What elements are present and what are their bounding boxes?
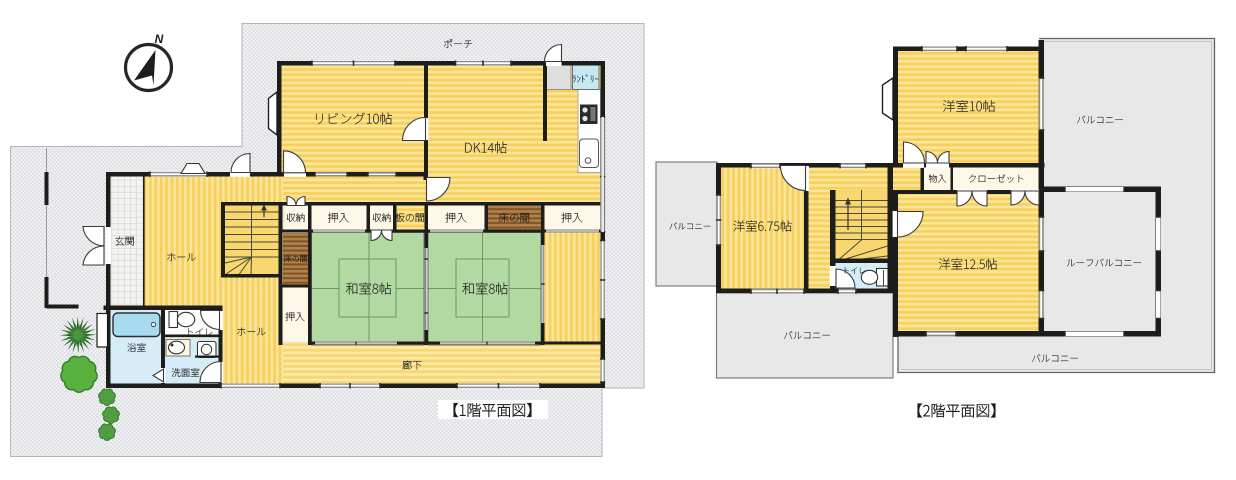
svg-text:N: N: [155, 32, 164, 46]
